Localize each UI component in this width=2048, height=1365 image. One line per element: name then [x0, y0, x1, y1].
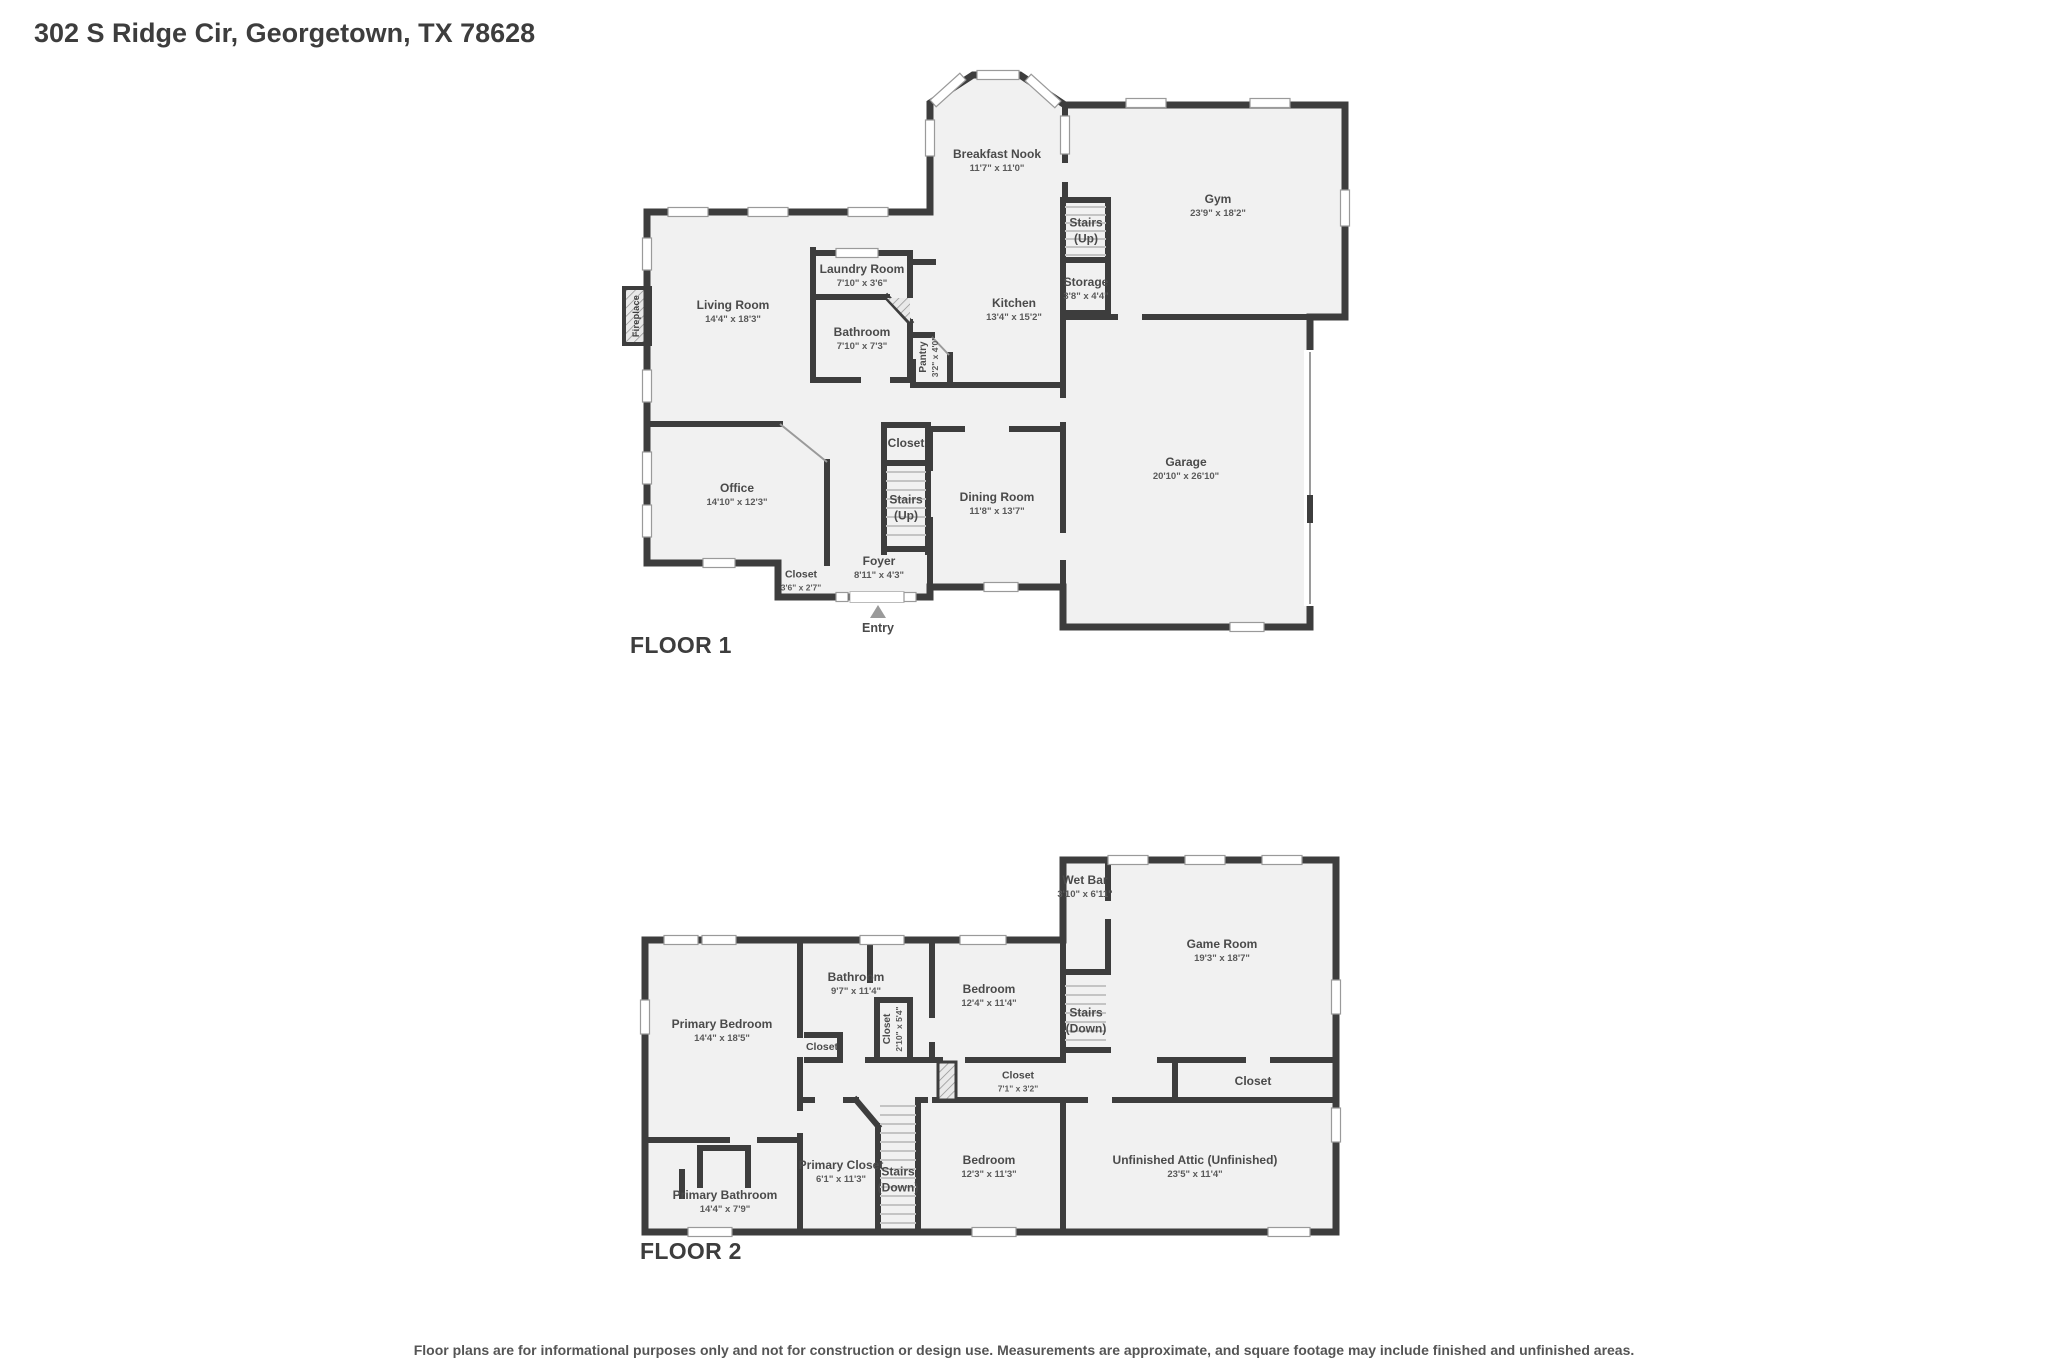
floor2-title: FLOOR 2: [640, 1238, 742, 1265]
room-label-closet-vertical: Closet 2'10" x 5'4": [881, 1006, 905, 1051]
entry-sidelite-right: [904, 593, 916, 602]
room-label-unfinished-attic: Unfinished Attic (Unfinished) 23'5" x 11…: [1113, 1153, 1278, 1181]
room-label-laundry-room: Laundry Room 7'10" x 3'6": [820, 262, 905, 290]
room-label-stairs-up-center: Stairs (Up): [889, 492, 922, 523]
room-label-kitchen: Kitchen 13'4" x 15'2": [986, 296, 1042, 324]
room-label-pantry: Pantry 3'2" x 4'0": [917, 337, 941, 377]
entry-sidelite-left: [836, 593, 848, 602]
floor-plan-page: 302 S Ridge Cir, Georgetown, TX 78628 Li…: [0, 0, 2048, 1365]
room-label-foyer: Foyer 8'11" x 4'3": [854, 554, 904, 582]
disclaimer-text: Floor plans are for informational purpos…: [0, 1342, 2048, 1358]
room-label-closet-center: Closet: [888, 436, 925, 452]
room-label-closet-hall: Closet 7'1" x 3'2": [998, 1070, 1038, 1095]
room-label-bedroom-2: Bedroom 12'3" x 11'3": [961, 1153, 1016, 1181]
room-label-living-room: Living Room 14'4" x 18'3": [697, 298, 770, 326]
room-label-closet-wide: Closet: [1235, 1074, 1272, 1090]
entry-label: Entry: [862, 620, 894, 636]
room-label-primary-bedroom: Primary Bedroom 14'4" x 18'5": [672, 1017, 773, 1045]
room-label-bathroom-f1: Bathroom 7'10" x 7'3": [834, 325, 891, 353]
room-label-dining-room: Dining Room 11'8" x 13'7": [960, 490, 1035, 518]
room-label-gym: Gym 23'9" x 18'2": [1190, 192, 1246, 220]
room-label-stairs-down-upper: Stairs (Down): [1066, 1005, 1107, 1036]
room-label-closet-small: Closet: [806, 1041, 838, 1055]
room-label-storage: Storage 3'8" x 4'4": [1063, 275, 1108, 303]
fireplace-label: Fireplace: [631, 295, 643, 337]
page-title: 302 S Ridge Cir, Georgetown, TX 78628: [34, 18, 535, 49]
room-label-breakfast-nook: Breakfast Nook 11'7" x 11'0": [953, 147, 1041, 175]
room-label-stairs-down-lower: Stairs (Down): [878, 1164, 919, 1195]
room-label-bedroom-1: Bedroom 12'4" x 11'4": [961, 982, 1016, 1010]
room-label-closet-foyer: Closet 3'6" x 2'7": [781, 569, 821, 594]
room-label-bathroom-f2: Bathroom 9'7" x 11'4": [828, 970, 885, 998]
room-label-stairs-up-right: Stairs (Up): [1069, 215, 1102, 246]
room-label-office: Office 14'10" x 12'3": [706, 481, 767, 509]
room-label-primary-closet: Primary Closet 6'1" x 11'3": [799, 1158, 884, 1186]
room-label-primary-bathroom: Primary Bathroom 14'4" x 7'9": [673, 1188, 778, 1216]
chase-hatch: [938, 1062, 956, 1100]
floor1-title: FLOOR 1: [630, 632, 732, 659]
entry-arrow-icon: [870, 605, 886, 618]
floor-plan-canvas: [0, 0, 2048, 1365]
room-label-game-room: Game Room 19'3" x 18'7": [1187, 937, 1258, 965]
entry-door-gap: [850, 592, 904, 603]
room-label-garage: Garage 20'10" x 26'10": [1153, 455, 1219, 483]
room-label-wet-bar: Wet Bar 3'10" x 6'11": [1057, 873, 1112, 901]
